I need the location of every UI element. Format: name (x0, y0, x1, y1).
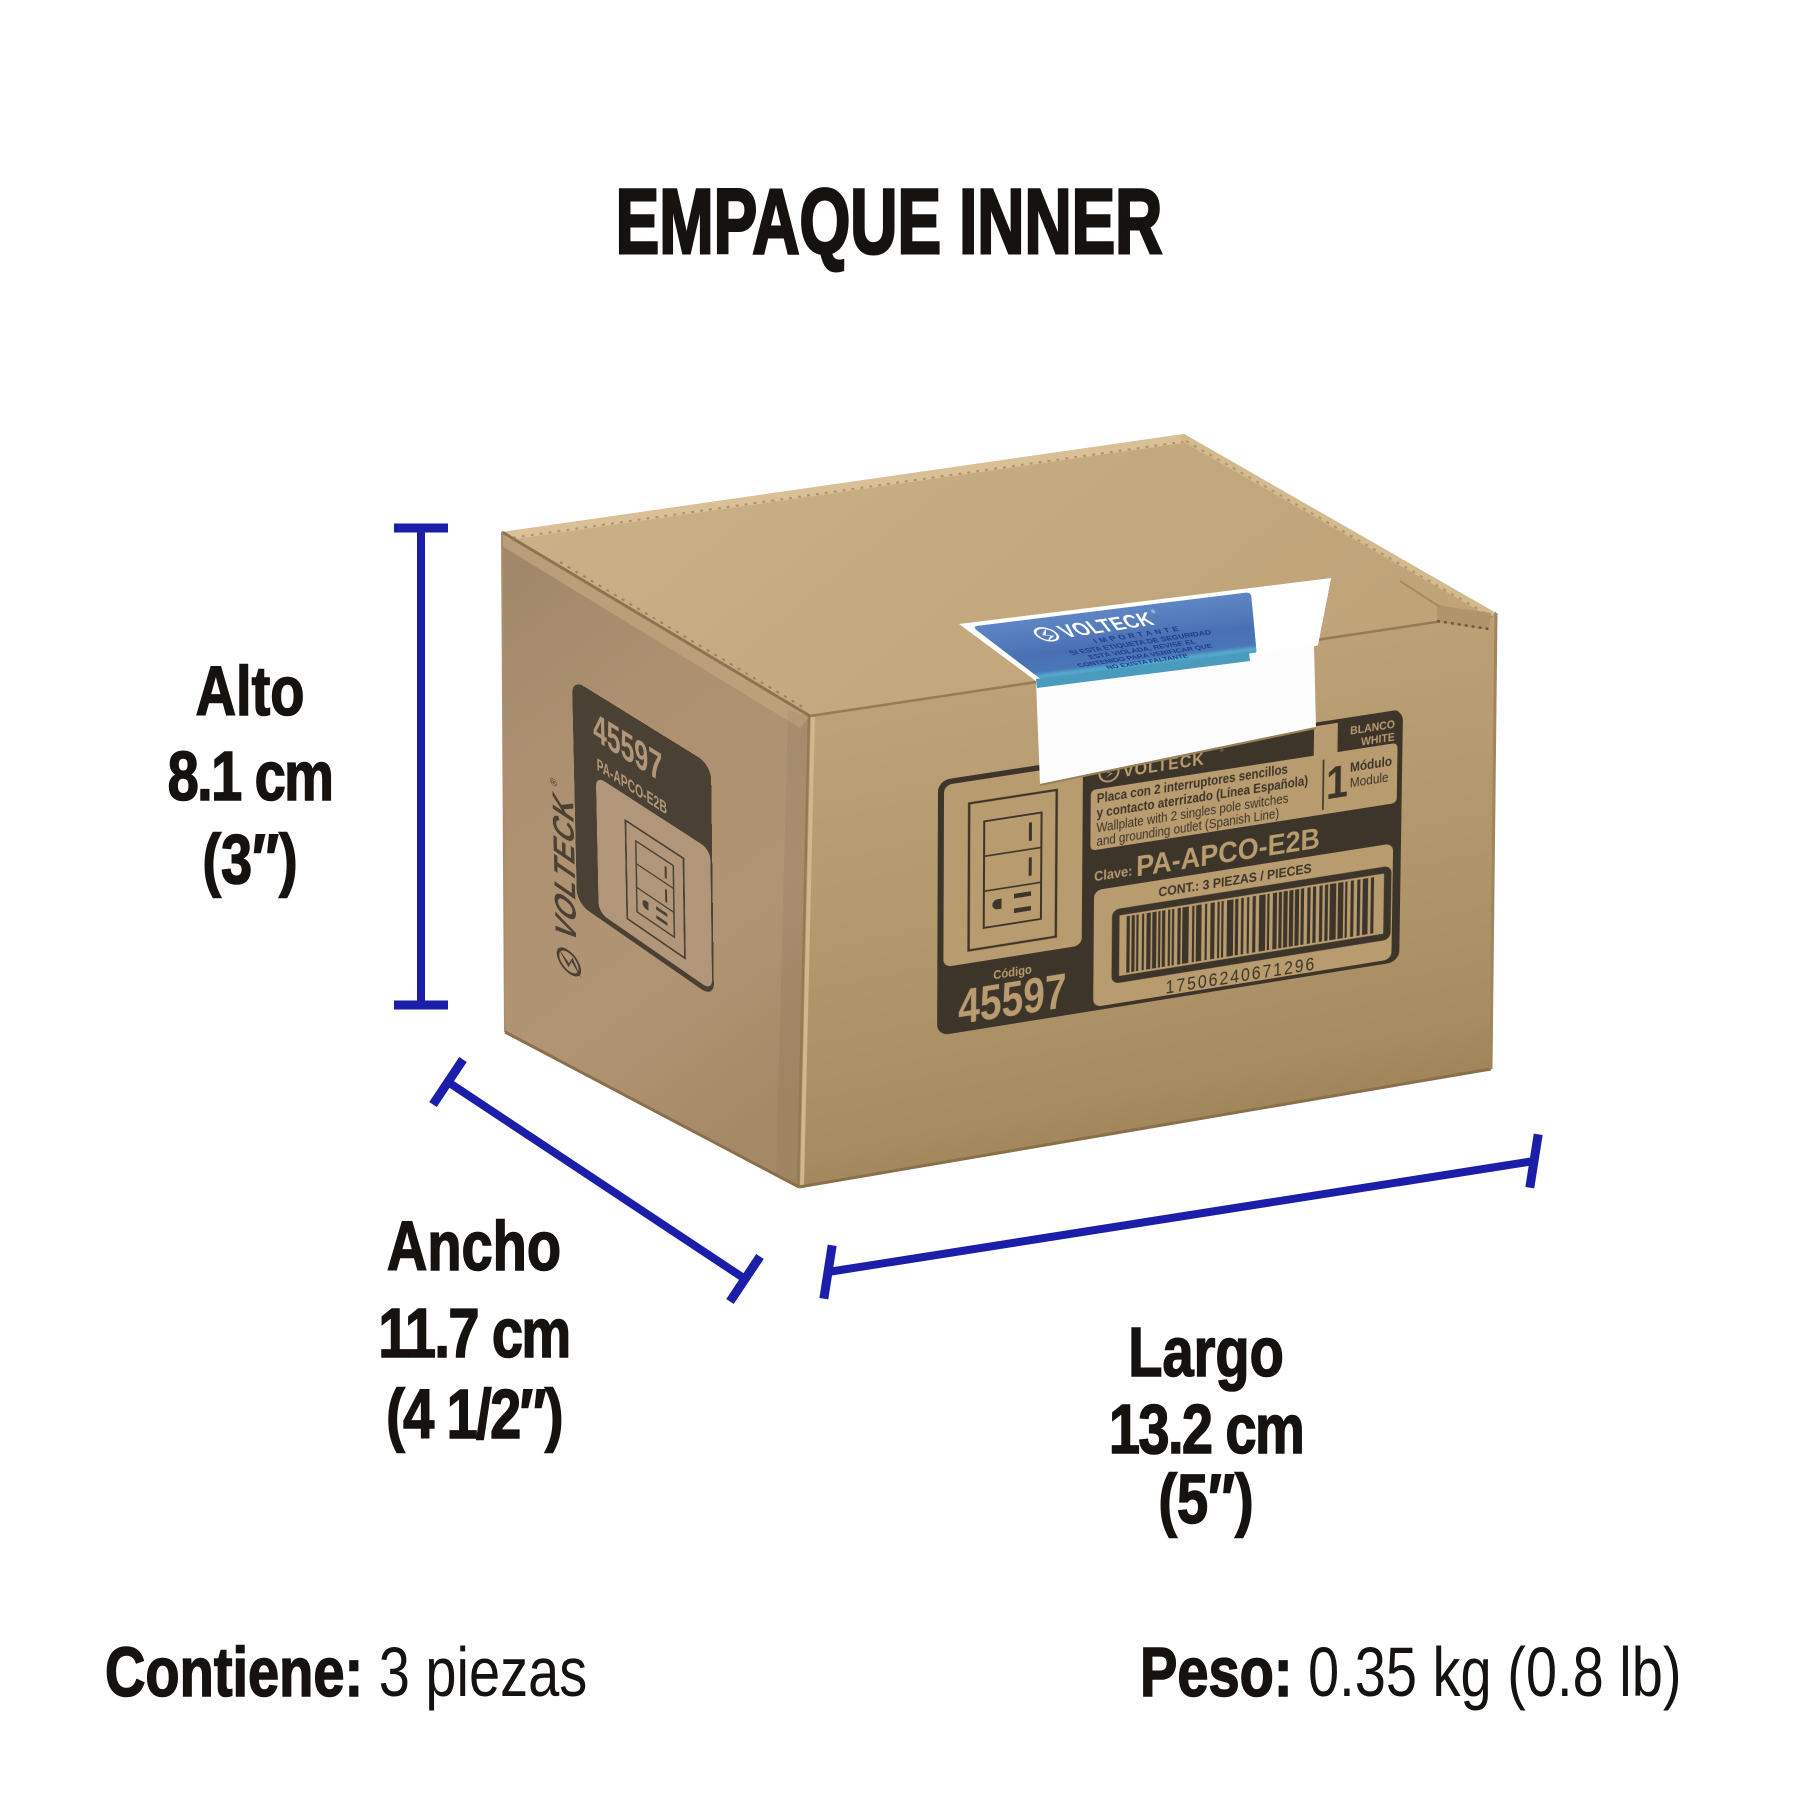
svg-text:EMPAQUE INNER: EMPAQUE INNER (616, 170, 1163, 273)
svg-text:Contiene: 3 piezas: Contiene: 3 piezas (105, 1634, 587, 1711)
svg-text:Alto: Alto (196, 653, 305, 730)
svg-text:8.1 cm: 8.1 cm (168, 738, 333, 815)
svg-text:(4 1/2″): (4 1/2″) (386, 1376, 562, 1453)
svg-text:Peso: 0.35 kg (0.8 lb): Peso: 0.35 kg (0.8 lb) (1140, 1634, 1682, 1711)
svg-text:Largo: Largo (1128, 1314, 1284, 1391)
svg-text:(5″): (5″) (1158, 1461, 1253, 1538)
svg-text:(3″): (3″) (202, 821, 297, 898)
svg-text:11.7 cm: 11.7 cm (378, 1295, 569, 1372)
svg-text:13.2 cm: 13.2 cm (1109, 1391, 1303, 1468)
svg-text:Ancho: Ancho (387, 1208, 561, 1285)
